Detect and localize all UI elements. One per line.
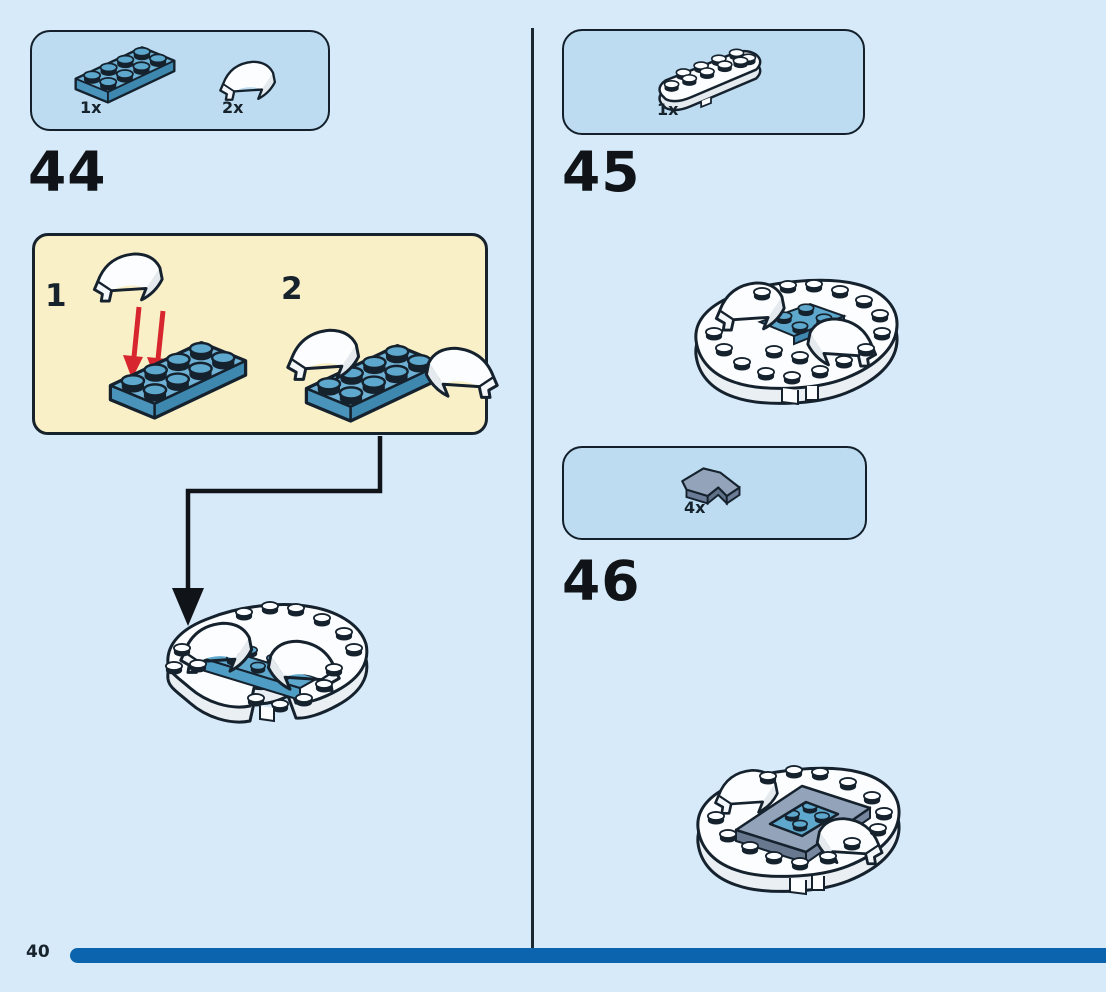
bottom-notch — [790, 878, 806, 894]
red-press-arrows — [134, 307, 163, 359]
part-count: 1x — [80, 100, 101, 116]
bottom-notch — [260, 706, 274, 721]
bottom-notch — [782, 388, 798, 404]
assembly-step-46 — [680, 744, 918, 918]
step-number-45: 45 — [562, 145, 641, 200]
part-count: 4x — [684, 500, 705, 516]
substep-illustrations — [34, 235, 486, 433]
column-divider — [531, 28, 534, 949]
instruction-page: 1x 2x 44 1 2 — [0, 0, 1106, 992]
page-number: 40 — [26, 944, 50, 961]
step-number-44: 44 — [28, 145, 107, 200]
bottom-notch — [812, 876, 824, 890]
step-number-46: 46 — [562, 554, 641, 609]
substep-2-illustration — [288, 330, 497, 421]
progress-bar — [70, 948, 1106, 963]
assembly-step-44 — [148, 578, 388, 756]
part-count: 1x — [657, 102, 678, 118]
part-count: 2x — [222, 100, 243, 116]
substep-1-illustration — [94, 254, 245, 418]
assembly-step-45 — [678, 256, 916, 426]
bottom-notch — [806, 386, 818, 400]
